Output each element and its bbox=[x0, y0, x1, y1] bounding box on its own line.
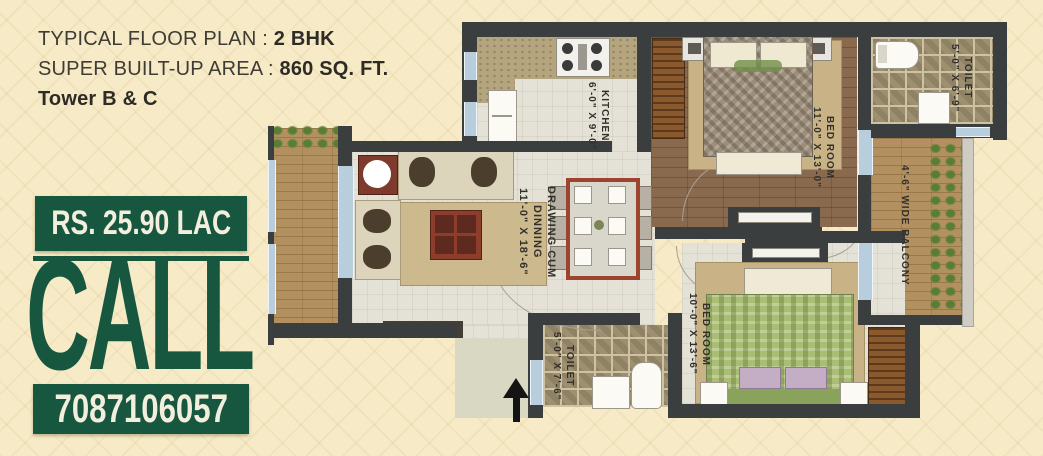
toilet2-window bbox=[530, 360, 543, 405]
bed2-bench bbox=[744, 268, 832, 296]
wall-toilet1-right bbox=[993, 22, 1007, 140]
area-value: 860 SQ. FT. bbox=[280, 58, 389, 80]
toilet1-window bbox=[956, 127, 990, 137]
bed2 bbox=[706, 294, 854, 406]
place-setting bbox=[574, 248, 592, 266]
label-balcony: 4'-6" WIDE BALCONY bbox=[898, 150, 911, 300]
dining-table bbox=[566, 178, 640, 280]
place-setting bbox=[608, 186, 626, 204]
bed1-bench bbox=[716, 152, 802, 175]
living-balcony-window bbox=[338, 166, 354, 278]
label-bedroom1: BED ROOM 11'-0" X 13'-0" bbox=[810, 92, 836, 202]
balcony-name: 4'-6" WIDE BALCONY bbox=[898, 150, 911, 300]
burner bbox=[591, 43, 602, 54]
bedroom2-name: BED ROOM bbox=[699, 282, 712, 386]
toilet1-tank bbox=[878, 45, 887, 63]
wall-toilet2-right bbox=[668, 313, 682, 418]
wardrobe-bedroom1 bbox=[652, 38, 685, 139]
left-balcony-plants bbox=[270, 124, 340, 152]
kitchen-dims: 6'-0" X 9'-0" bbox=[585, 70, 598, 162]
toilet2-wc bbox=[631, 362, 662, 409]
bedroom1-name: BED ROOM bbox=[823, 92, 836, 202]
nightstand-top bbox=[688, 43, 701, 54]
coffee-table-pane bbox=[457, 236, 476, 254]
balcony-window bbox=[858, 240, 873, 300]
coffee-table-pane bbox=[435, 236, 454, 254]
sofa-cushion bbox=[363, 245, 391, 269]
coffee-table-pane bbox=[435, 215, 454, 233]
sofa-cushion bbox=[409, 157, 435, 187]
tv-screen-bedroom1 bbox=[738, 212, 812, 223]
coffee-table-pane bbox=[457, 215, 476, 233]
balcony-outer-edge bbox=[962, 138, 974, 327]
kitchen-name: KITCHEN bbox=[598, 70, 611, 162]
drawing-dims: 11'-0" X 18'-6" bbox=[516, 168, 530, 296]
label-toilet2: TOILET 5'-0" X 7'-6" bbox=[550, 322, 576, 410]
bed2-headboard bbox=[707, 389, 851, 404]
wall-kitchen-bed1 bbox=[637, 22, 651, 152]
toilet1-shower bbox=[918, 92, 950, 124]
sofa-left bbox=[355, 200, 401, 280]
bed2-pillow bbox=[785, 367, 827, 389]
headline-block: TYPICAL FLOOR PLAN : 2 BHK SUPER BUILT-U… bbox=[38, 24, 388, 114]
flyer-canvas: TYPICAL FLOOR PLAN : 2 BHK SUPER BUILT-U… bbox=[0, 0, 1043, 456]
toilet2-dims: 5'-0" X 7'-6" bbox=[550, 322, 563, 410]
sofa-cushion bbox=[471, 157, 497, 187]
bedroom1-dims: 11'-0" X 13'-0" bbox=[810, 92, 823, 202]
wall-bed1-bottom bbox=[655, 227, 822, 239]
place-setting bbox=[608, 248, 626, 266]
tv-niche-bedroom2 bbox=[742, 243, 828, 262]
call-word: CALL bbox=[26, 252, 256, 382]
left-balcony-window bbox=[268, 160, 276, 232]
label-kitchen: KITCHEN 6'-0" X 9'-0" bbox=[585, 70, 611, 162]
wall-living-top bbox=[350, 141, 612, 152]
area-label: SUPER BUILT-UP AREA : bbox=[38, 58, 274, 80]
call-text: CALL bbox=[26, 252, 253, 378]
place-setting bbox=[574, 217, 592, 235]
nightstand-top bbox=[812, 43, 825, 54]
entry-arrow-stem bbox=[513, 396, 520, 422]
toilet1-name: TOILET bbox=[961, 34, 974, 122]
kitchen-window bbox=[464, 102, 477, 136]
toilet2-name: TOILET bbox=[563, 322, 576, 410]
wall-top bbox=[462, 22, 1007, 37]
toilet1-wc bbox=[875, 41, 919, 69]
side-table-top bbox=[363, 160, 391, 188]
stove-grill bbox=[578, 44, 587, 70]
headline-line3: Tower B & C bbox=[38, 84, 388, 114]
place-setting bbox=[574, 186, 592, 204]
left-balcony-floor bbox=[272, 128, 338, 338]
right-balcony-plants bbox=[928, 142, 962, 312]
fridge-handle bbox=[492, 115, 512, 117]
entry-arrow-icon bbox=[503, 378, 529, 398]
kitchen-window bbox=[464, 52, 477, 80]
fridge bbox=[488, 90, 517, 142]
bed2-pillow bbox=[739, 367, 781, 389]
plan-type-label: TYPICAL FLOOR PLAN : bbox=[38, 28, 268, 50]
phone-badge: 7087106057 bbox=[33, 384, 249, 434]
tv-screen-bedroom2 bbox=[752, 248, 820, 258]
drawing-name-line1: DRAWING CUM bbox=[544, 168, 558, 296]
sofa-top bbox=[398, 148, 514, 200]
table-centerpiece bbox=[594, 220, 604, 230]
burner bbox=[562, 60, 573, 71]
tv-niche-bedroom1 bbox=[728, 207, 820, 227]
sofa-cushion bbox=[363, 209, 391, 233]
toilet1-dims: 5'-0" X 6'-9" bbox=[948, 34, 961, 122]
phone-number: 7087106057 bbox=[54, 387, 228, 432]
wall-living-bottom bbox=[268, 323, 458, 338]
wall-toilet2-top bbox=[528, 313, 640, 325]
side-table-frame bbox=[358, 155, 398, 195]
bed1 bbox=[703, 33, 813, 157]
tower-label: Tower B & C bbox=[38, 88, 158, 110]
toilet2-shower bbox=[592, 376, 630, 409]
wall-balcony-inner-top bbox=[338, 126, 352, 166]
label-bedroom2: BED ROOM 10'-0" X 13'-6" bbox=[686, 282, 712, 386]
coffee-table bbox=[430, 210, 482, 260]
burner bbox=[562, 43, 573, 54]
nightstand bbox=[840, 382, 868, 405]
plan-type-value: 2 BHK bbox=[274, 28, 335, 50]
headline-line2: SUPER BUILT-UP AREA : 860 SQ. FT. bbox=[38, 54, 388, 84]
wardrobe-bedroom2 bbox=[868, 327, 907, 405]
wall-bed2-bottom bbox=[668, 404, 920, 418]
label-toilet1: TOILET 5'-0" X 6'-9" bbox=[948, 34, 974, 122]
bed1-throw bbox=[734, 60, 782, 72]
bedroom2-dims: 10'-0" X 13'-6" bbox=[686, 282, 699, 386]
label-drawing: DRAWING CUM DINNING 11'-0" X 18'-6" bbox=[516, 168, 558, 296]
left-balcony-window bbox=[268, 244, 276, 314]
place-setting bbox=[608, 217, 626, 235]
wall-bed2-right bbox=[905, 318, 920, 418]
drawing-name-line2: DINNING bbox=[530, 168, 544, 296]
headline-line1: TYPICAL FLOOR PLAN : 2 BHK bbox=[38, 24, 388, 54]
wall-balcony-inner-bottom bbox=[338, 278, 352, 338]
